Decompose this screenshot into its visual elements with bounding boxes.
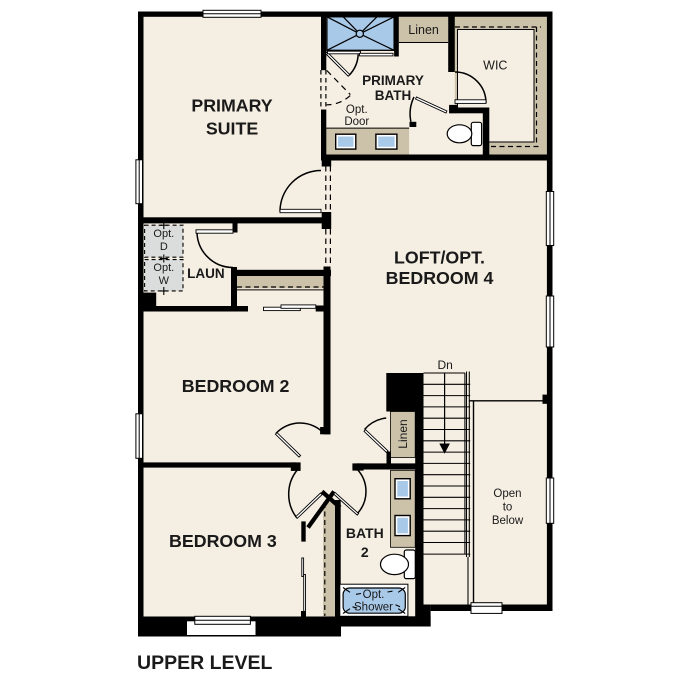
- svg-text:UPPER LEVEL: UPPER LEVEL: [137, 652, 273, 674]
- svg-text:Opt.: Opt.: [153, 228, 174, 240]
- svg-text:Shower: Shower: [354, 602, 393, 614]
- svg-text:Door: Door: [344, 116, 369, 128]
- svg-text:BEDROOM 3: BEDROOM 3: [169, 531, 277, 551]
- svg-text:BATH: BATH: [346, 525, 384, 541]
- svg-text:BEDROOM 2: BEDROOM 2: [182, 376, 290, 396]
- svg-text:PRIMARY: PRIMARY: [362, 73, 424, 88]
- svg-text:SUITE: SUITE: [206, 119, 259, 139]
- svg-text:2: 2: [361, 544, 369, 560]
- svg-text:PRIMARY: PRIMARY: [191, 96, 272, 116]
- svg-text:D: D: [160, 241, 168, 253]
- svg-text:BEDROOM 4: BEDROOM 4: [386, 268, 494, 288]
- svg-text:Below: Below: [492, 515, 524, 527]
- svg-text:WIC: WIC: [483, 59, 507, 73]
- svg-text:Opt.: Opt.: [363, 589, 385, 601]
- svg-text:LOFT/OPT.: LOFT/OPT.: [394, 248, 485, 268]
- svg-text:Linen: Linen: [396, 419, 410, 448]
- svg-text:BATH: BATH: [375, 88, 412, 103]
- svg-text:Open: Open: [493, 488, 521, 500]
- svg-text:W: W: [159, 275, 170, 287]
- svg-text:Opt.: Opt.: [346, 104, 368, 116]
- svg-text:Dn: Dn: [438, 358, 453, 372]
- svg-text:Linen: Linen: [408, 23, 439, 37]
- svg-text:LAUN: LAUN: [187, 266, 225, 281]
- svg-text:to: to: [503, 502, 513, 514]
- svg-text:Opt.: Opt.: [153, 262, 174, 274]
